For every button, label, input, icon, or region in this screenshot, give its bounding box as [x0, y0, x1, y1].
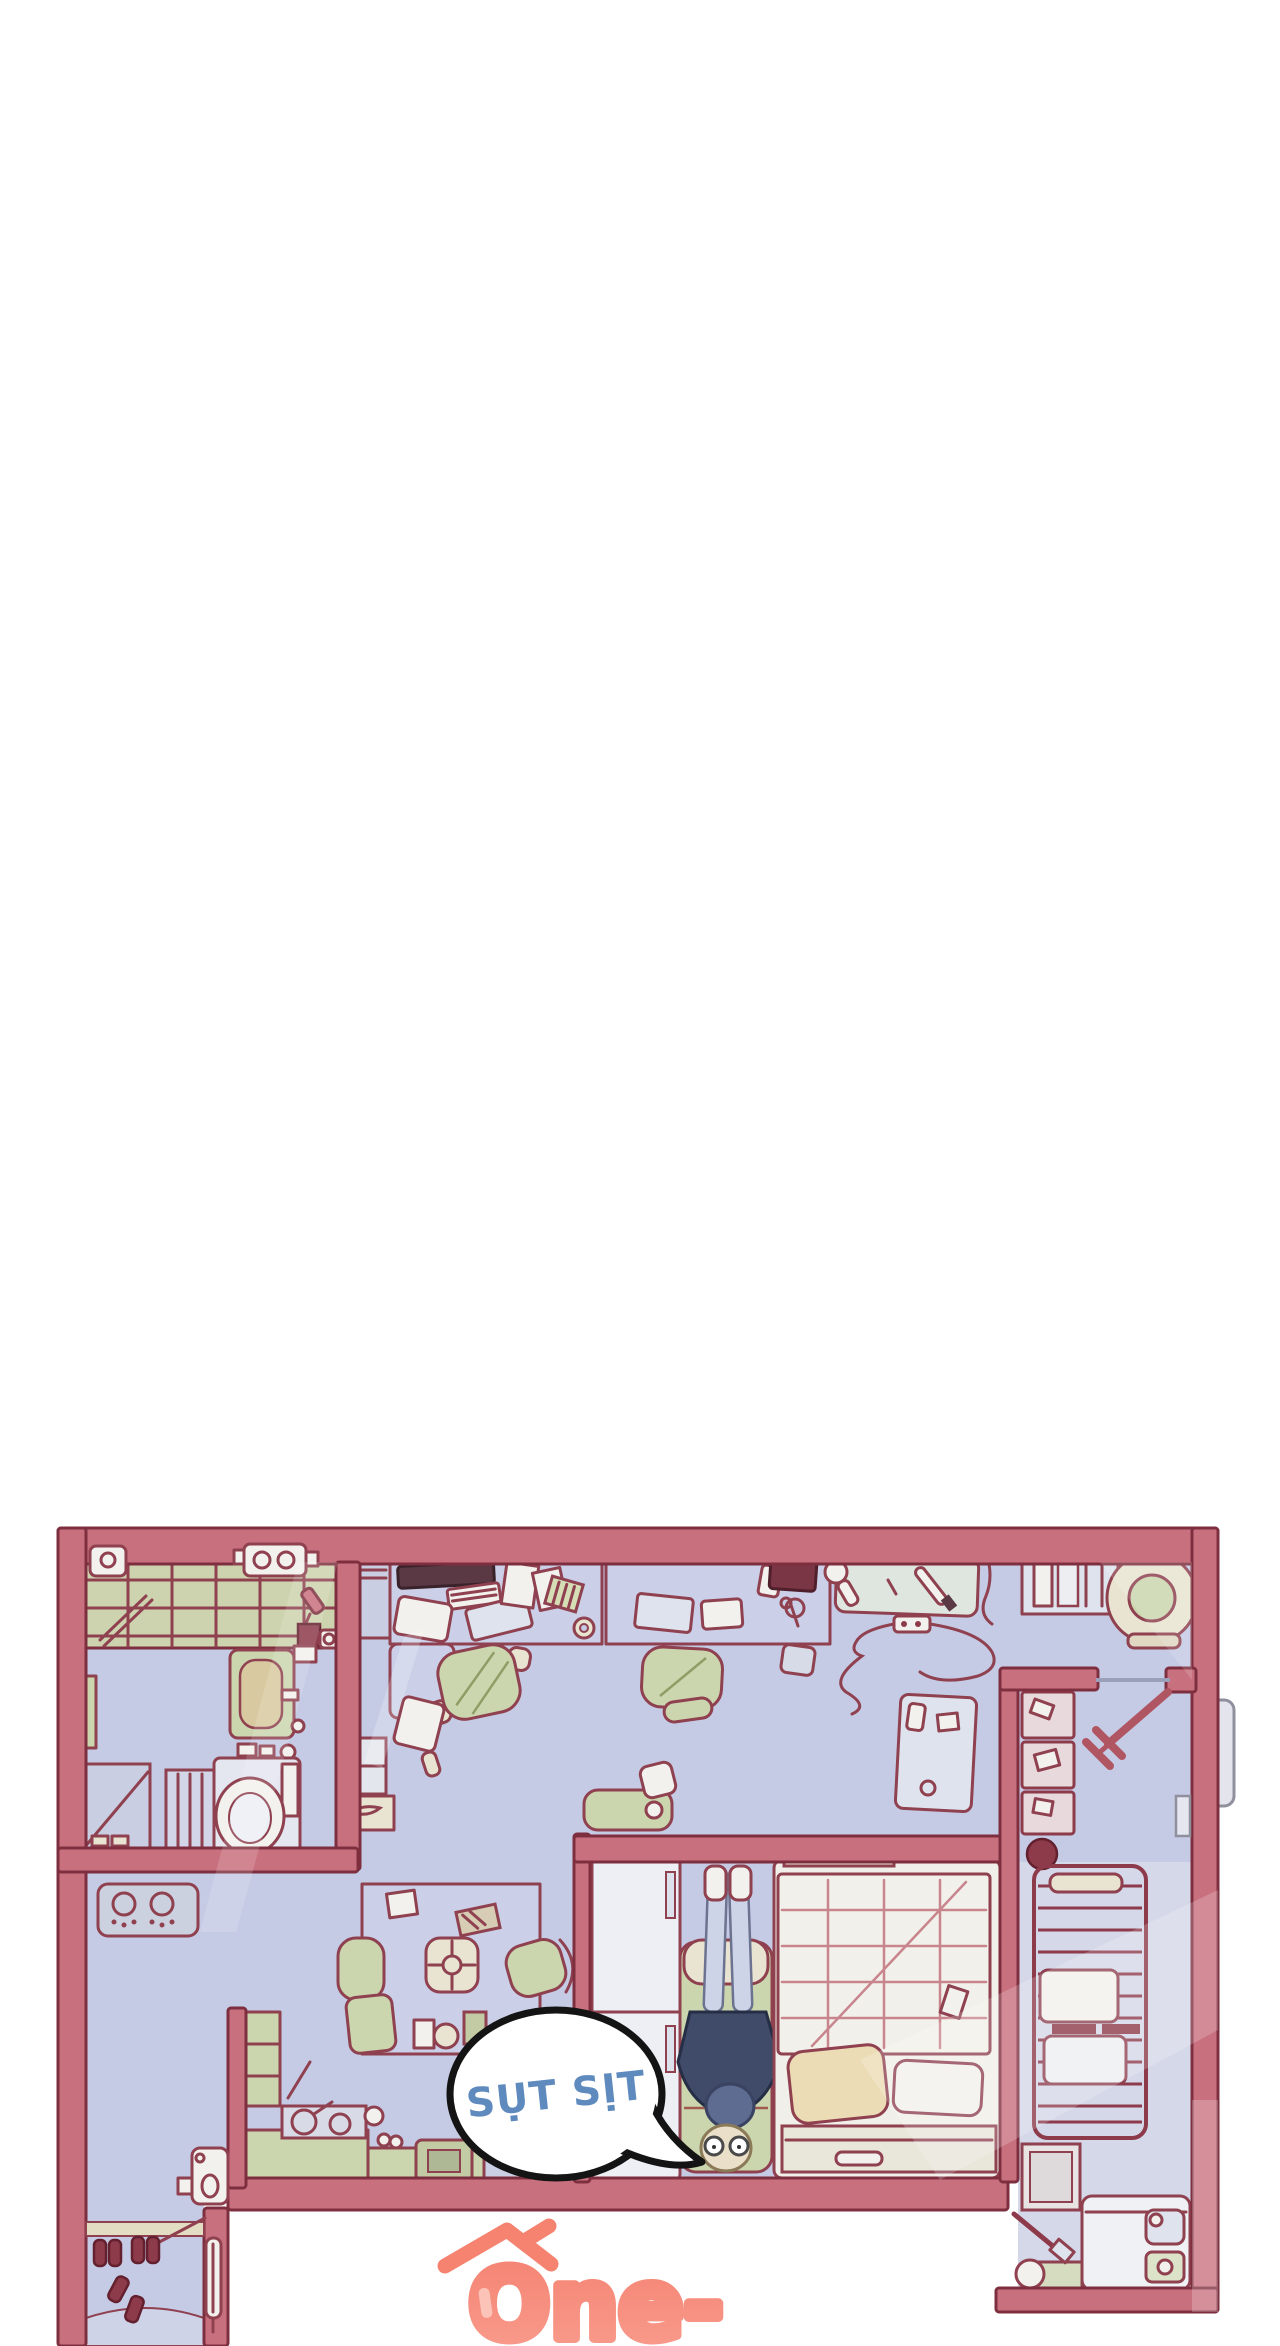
- bedroom-wall-top: [574, 1836, 1018, 1862]
- laptop-2: [634, 1593, 693, 1633]
- towel: [639, 1761, 678, 1800]
- kitchen-cabinet: [246, 2012, 280, 2106]
- floor-cushion-small: [345, 1994, 397, 2055]
- sock: [705, 1866, 726, 1900]
- paper: [501, 1562, 539, 1608]
- kitchen-gadget: [414, 2020, 434, 2048]
- pot: [365, 2107, 383, 2125]
- wall-hook: [1176, 1796, 1190, 1836]
- laundry-wall-bottom: [996, 2288, 1218, 2312]
- power-strip: [894, 1616, 930, 1632]
- switch-panel: [98, 1884, 198, 1936]
- entry-shoe-pit: [86, 2308, 204, 2346]
- wall-left: [58, 1528, 86, 2346]
- hanging-clothes: [780, 1644, 816, 1676]
- bathroom-cabinet: [78, 1764, 150, 1852]
- umbrella: [206, 2238, 221, 2332]
- toaster-oven: [416, 2140, 472, 2182]
- bathroom-wall-right: [336, 1562, 360, 1870]
- laundry-basket: [1022, 2144, 1080, 2210]
- kitchen-partition: [228, 2008, 246, 2188]
- closet-wall-top: [1000, 1668, 1098, 1690]
- floor-cushion-left: [338, 1938, 384, 2000]
- floorplan-illustration: SỤT SỊT One-: [0, 0, 1280, 2346]
- webtoon-panel: SỤT SỊT One-: [0, 0, 1280, 2346]
- tablet: [393, 1596, 453, 1643]
- storage-crates: [1022, 1692, 1074, 1834]
- hot-plate: [426, 1938, 478, 1992]
- brand-logo: One-: [445, 2226, 723, 2346]
- logo-text: One-: [469, 2249, 724, 2346]
- wall-bottom: [228, 2178, 1008, 2210]
- stove: [282, 2102, 366, 2138]
- soap-tray: [90, 1546, 126, 1576]
- sock: [730, 1866, 751, 1900]
- bathroom-wall-bottom: [58, 1848, 358, 1872]
- radiator: [166, 1770, 214, 1854]
- mousepad: [701, 1599, 743, 1630]
- round-pot: [434, 2024, 458, 2048]
- washing-machine: [1082, 2196, 1190, 2290]
- hair: [706, 2084, 754, 2128]
- wall-top: [58, 1528, 1218, 1564]
- bottle: [906, 1703, 925, 1731]
- pitcher: [386, 1890, 417, 1918]
- round-basket: [1016, 2260, 1044, 2288]
